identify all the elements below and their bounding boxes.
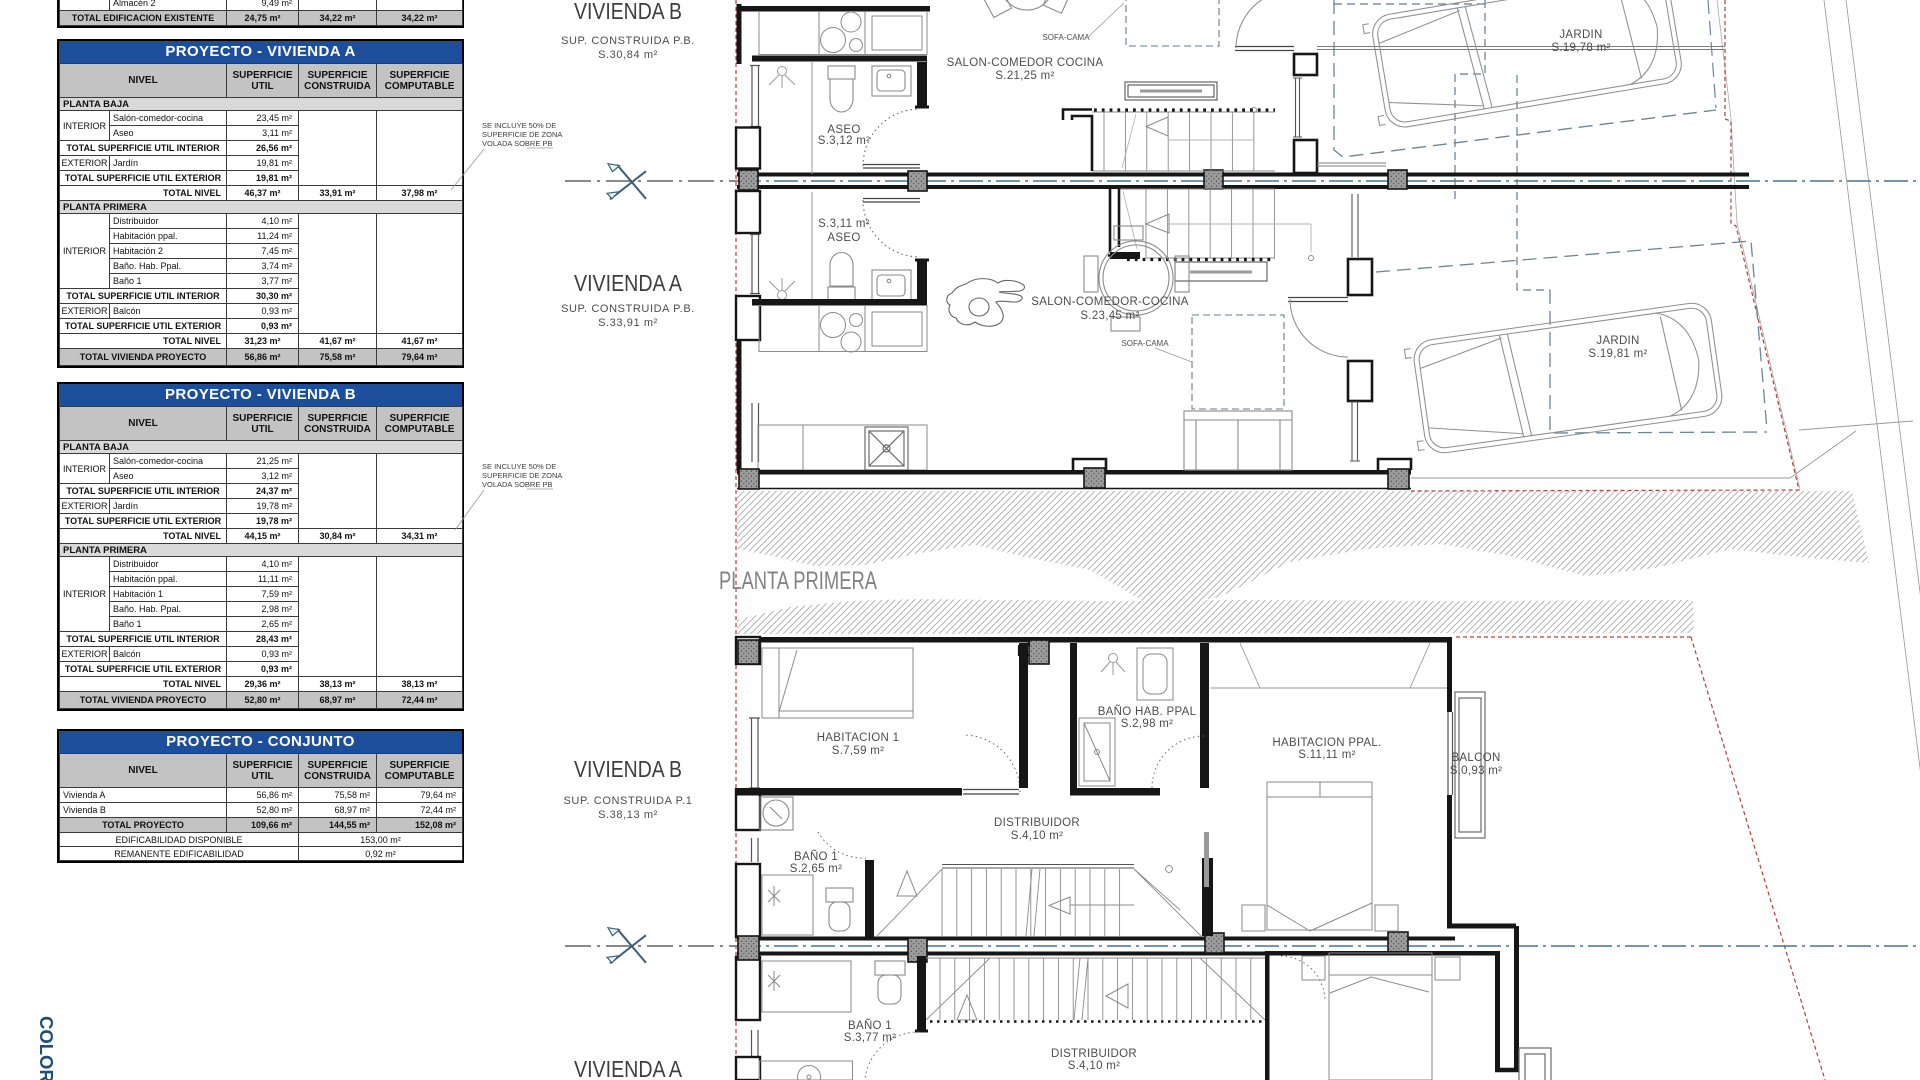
svg-text:SUPERFICIE DE ZONA: SUPERFICIE DE ZONA bbox=[482, 471, 562, 480]
svg-text:S.11,11 m²: S.11,11 m² bbox=[1298, 749, 1356, 761]
svg-text:VIVIENDA A: VIVIENDA A bbox=[574, 1056, 683, 1080]
svg-text:SUP. CONSTRUIDA P.B.: SUP. CONSTRUIDA P.B. bbox=[561, 303, 695, 315]
svg-text:JARDIN: JARDIN bbox=[1559, 29, 1602, 41]
svg-text:HABITACION 1: HABITACION 1 bbox=[817, 732, 900, 744]
svg-text:SALON-COMEDOR COCINA: SALON-COMEDOR COCINA bbox=[947, 57, 1104, 69]
svg-text:S.19,81 m²: S.19,81 m² bbox=[1588, 348, 1647, 360]
svg-text:S.7,59 m²: S.7,59 m² bbox=[832, 745, 885, 757]
svg-text:S.2,65 m²: S.2,65 m² bbox=[790, 863, 843, 875]
svg-text:S.3,12 m²: S.3,12 m² bbox=[818, 135, 871, 147]
svg-text:SUP. CONSTRUIDA P.B.: SUP. CONSTRUIDA P.B. bbox=[561, 35, 695, 47]
svg-text:S.30,84 m²: S.30,84 m² bbox=[598, 49, 658, 61]
svg-text:VIVIENDA B: VIVIENDA B bbox=[574, 756, 682, 782]
svg-text:S.21,25 m²: S.21,25 m² bbox=[995, 70, 1054, 82]
svg-text:PLANTA PRIMERA: PLANTA PRIMERA bbox=[719, 567, 877, 595]
svg-text:VIVIENDA A: VIVIENDA A bbox=[574, 270, 683, 296]
svg-text:ASEO: ASEO bbox=[827, 232, 860, 244]
svg-text:S.2,98 m²: S.2,98 m² bbox=[1121, 718, 1174, 730]
svg-text:DISTRIBUIDOR: DISTRIBUIDOR bbox=[994, 817, 1080, 829]
svg-text:SUP. CONSTRUIDA P.1: SUP. CONSTRUIDA P.1 bbox=[564, 795, 693, 807]
svg-text:S.3,77 m²: S.3,77 m² bbox=[844, 1032, 897, 1044]
svg-text:SOFA-CAMA: SOFA-CAMA bbox=[1042, 33, 1090, 42]
svg-text:JARDIN: JARDIN bbox=[1596, 335, 1639, 347]
svg-text:BALCON: BALCON bbox=[1451, 752, 1500, 764]
svg-text:BAÑO HAB. PPAL: BAÑO HAB. PPAL bbox=[1098, 705, 1197, 718]
svg-text:SUPERFICIE DE ZONA: SUPERFICIE DE ZONA bbox=[482, 130, 562, 139]
svg-text:VIVIENDA B: VIVIENDA B bbox=[574, 0, 682, 24]
svg-text:SALON-COMEDOR-COCINA: SALON-COMEDOR-COCINA bbox=[1031, 296, 1188, 308]
svg-text:S.33,91 m²: S.33,91 m² bbox=[598, 317, 658, 329]
svg-text:S.19,78 m²: S.19,78 m² bbox=[1551, 42, 1610, 54]
svg-text:BAÑO 1: BAÑO 1 bbox=[794, 850, 838, 863]
svg-text:S.4,10 m²: S.4,10 m² bbox=[1068, 1060, 1121, 1072]
svg-text:SE INCLUYE 50% DE: SE INCLUYE 50% DE bbox=[482, 121, 556, 130]
svg-text:S.3,11 m²: S.3,11 m² bbox=[818, 218, 870, 230]
svg-text:SE INCLUYE 50% DE: SE INCLUYE 50% DE bbox=[482, 462, 556, 471]
svg-text:VOLADA SOBRE PB: VOLADA SOBRE PB bbox=[482, 480, 552, 489]
svg-text:HABITACION PPAL.: HABITACION PPAL. bbox=[1272, 737, 1381, 749]
svg-text:VOLADA SOBRE PB: VOLADA SOBRE PB bbox=[482, 139, 552, 148]
svg-text:SOFA-CAMA: SOFA-CAMA bbox=[1121, 339, 1169, 348]
svg-text:COLOR: COLOR bbox=[36, 1016, 57, 1080]
svg-text:DISTRIBUIDOR: DISTRIBUIDOR bbox=[1051, 1048, 1137, 1060]
svg-text:S.0,93 m²: S.0,93 m² bbox=[1450, 765, 1503, 777]
svg-text:S.23,45 m²: S.23,45 m² bbox=[1080, 310, 1139, 322]
svg-text:S.38,13 m²: S.38,13 m² bbox=[598, 809, 658, 821]
svg-text:S.4,10 m²: S.4,10 m² bbox=[1011, 830, 1064, 842]
svg-text:BAÑO 1: BAÑO 1 bbox=[848, 1019, 892, 1032]
